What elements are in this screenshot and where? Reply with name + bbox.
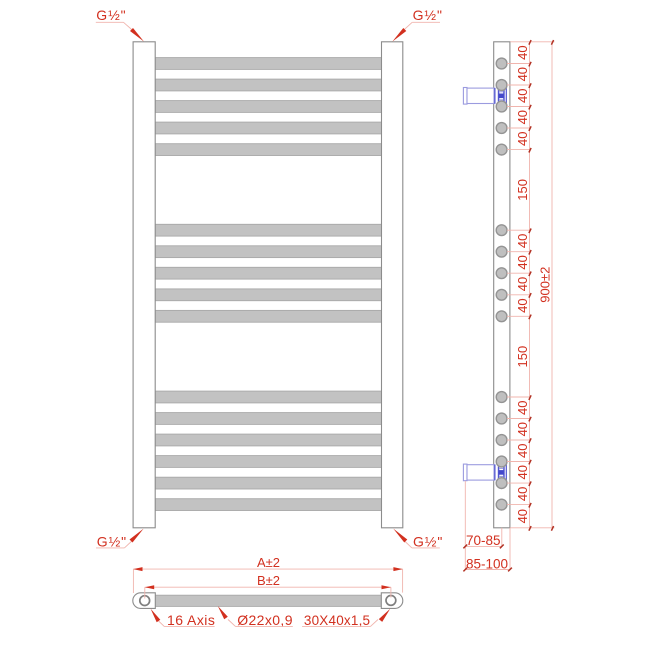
svg-text:B±2: B±2 [257, 573, 280, 588]
svg-text:900±2: 900±2 [537, 267, 552, 303]
svg-text:40: 40 [515, 298, 530, 312]
svg-text:70-85: 70-85 [466, 533, 501, 548]
svg-text:85-100: 85-100 [466, 556, 508, 571]
svg-text:30X40x1,5: 30X40x1,5 [304, 613, 370, 628]
svg-text:150: 150 [515, 179, 530, 201]
svg-text:40: 40 [515, 132, 530, 146]
svg-text:A±2: A±2 [257, 555, 280, 570]
svg-text:40: 40 [515, 422, 530, 436]
svg-text:40: 40 [515, 277, 530, 291]
svg-text:16 Axis: 16 Axis [167, 612, 215, 628]
svg-text:40: 40 [515, 444, 530, 458]
svg-text:40: 40 [515, 89, 530, 103]
svg-text:G½": G½" [96, 7, 126, 23]
svg-text:Ø22x0,9: Ø22x0,9 [237, 612, 293, 628]
svg-text:40: 40 [515, 110, 530, 124]
svg-text:40: 40 [515, 401, 530, 415]
svg-text:G½": G½" [413, 7, 443, 23]
svg-text:40: 40 [515, 67, 530, 81]
svg-text:40: 40 [515, 45, 530, 59]
svg-text:40: 40 [515, 509, 530, 523]
svg-text:40: 40 [515, 234, 530, 248]
svg-text:40: 40 [515, 465, 530, 479]
svg-text:G½": G½" [97, 534, 127, 550]
svg-text:G½": G½" [413, 534, 443, 550]
svg-text:40: 40 [515, 487, 530, 501]
svg-text:40: 40 [515, 255, 530, 269]
svg-text:150: 150 [515, 346, 530, 368]
